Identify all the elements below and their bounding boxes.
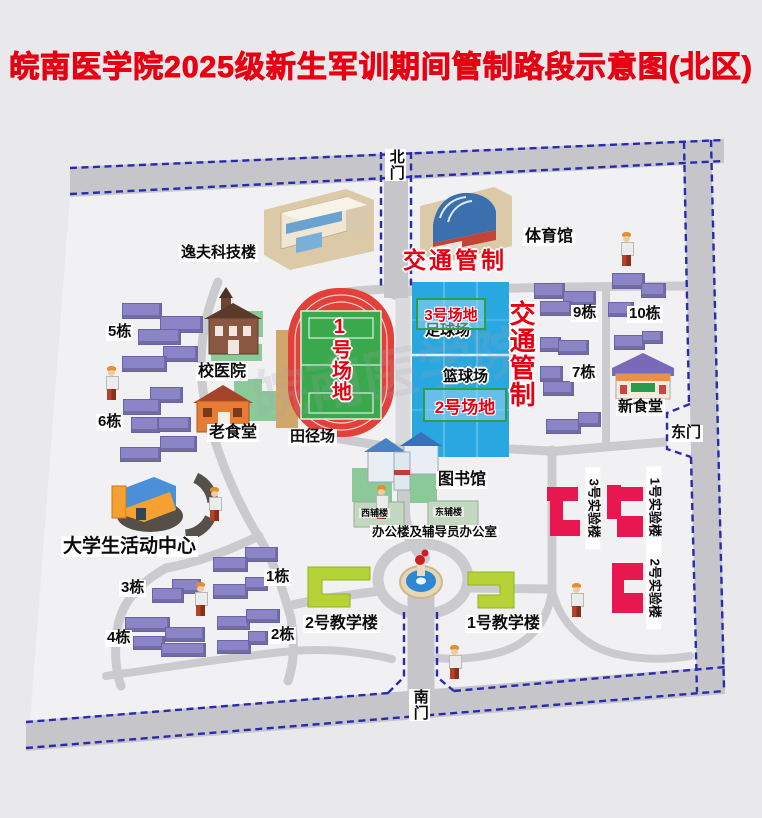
dorm-block: [152, 588, 184, 603]
field-3-zone: 3号场地: [416, 298, 486, 330]
student-figure: [618, 232, 635, 266]
field-2-zone: 2号场地: [423, 388, 507, 422]
dorm-block: [160, 436, 197, 452]
person-torso: [621, 242, 634, 256]
activity-center-label: 大学生活动中心: [61, 536, 198, 557]
dorm-block: [248, 631, 268, 645]
person-legs: [622, 255, 631, 266]
dorm-label: 7栋: [570, 365, 597, 382]
old-canteen-label: 老食堂: [207, 424, 259, 442]
dorm-block: [578, 412, 601, 427]
dorm-block: [161, 643, 206, 657]
east-gate-label: 东门: [669, 425, 703, 442]
person-torso: [571, 593, 584, 607]
field-1-label: 1号场地: [326, 316, 352, 402]
dorm-block: [165, 627, 205, 642]
person-torso: [106, 376, 119, 390]
person-legs: [196, 605, 205, 616]
dorm-block: [534, 283, 565, 299]
student-figure: [192, 582, 209, 616]
dorm-block: [120, 447, 161, 462]
lab-building-3-label: 3号实验楼: [586, 467, 601, 549]
library-label: 图书馆: [436, 471, 488, 489]
dorm-block: [558, 340, 589, 355]
new-canteen-label: 新食堂: [616, 399, 665, 416]
teaching-building-1-label: 1号教学楼: [465, 615, 542, 633]
student-figure: [446, 645, 463, 679]
traffic-control-banner: 交通管制: [401, 248, 509, 274]
dorm-block: [217, 640, 251, 654]
dorm-block: [131, 417, 160, 433]
south-gate-label: 南门: [409, 689, 430, 721]
dorm-block: [540, 366, 563, 382]
east-annex-label: 东辅楼: [433, 507, 464, 517]
person-legs: [572, 606, 581, 617]
person-legs: [450, 668, 459, 679]
traffic-control-banner-vertical: 交通管制: [504, 300, 537, 408]
dorm-block: [614, 335, 645, 350]
north-gate-label: 北门: [385, 149, 406, 181]
lab-building-1-label: 1号实验楼: [647, 466, 662, 548]
gym-label: 体育馆: [523, 228, 575, 246]
dorm-block: [546, 419, 581, 434]
dorm-block: [245, 547, 278, 562]
dorm-block: [641, 283, 666, 298]
dorm-block: [122, 303, 162, 319]
teaching-building-2-label: 2号教学楼: [303, 615, 380, 633]
dorm-label: 6栋: [96, 414, 123, 431]
dorm-block: [122, 356, 167, 372]
student-figure: [568, 583, 585, 617]
student-figure: [206, 487, 223, 521]
person-torso: [209, 497, 222, 511]
dorm-block: [213, 584, 248, 599]
person-legs: [210, 510, 219, 521]
dorm-label: 9栋: [571, 305, 598, 322]
dorm-label: 1栋: [264, 569, 291, 586]
dorm-block: [163, 346, 198, 362]
dorm-label: 4栋: [105, 630, 132, 647]
yifu-label: 逸夫科技楼: [179, 245, 258, 262]
dorm-block: [213, 557, 248, 572]
west-annex-label: 西辅楼: [359, 508, 390, 518]
basketball-court-label: 篮球场: [441, 369, 490, 386]
person-torso: [449, 655, 462, 669]
dorm-block: [543, 381, 574, 396]
lab-building-2-label: 2号实验楼: [647, 547, 662, 629]
dorm-block: [246, 609, 280, 623]
dorm-block: [138, 329, 181, 345]
dorm-block: [123, 399, 161, 415]
dorm-label: 3栋: [119, 580, 146, 597]
dorm-label: 2栋: [269, 627, 296, 644]
office-label: 办公楼及辅导员办公室: [370, 525, 499, 539]
person-legs: [107, 389, 116, 400]
dorm-block: [158, 417, 191, 432]
person-torso: [195, 592, 208, 606]
dorm-block: [540, 301, 572, 316]
dorm-label: 10栋: [627, 306, 663, 323]
campus-map-page: 皖南医学院2025级新生军训期间管制路段示意图(北区) 皖南医学院: [0, 0, 762, 818]
hospital-label: 校医院: [196, 363, 248, 381]
person-torso: [376, 495, 389, 509]
track-label: 田径场: [288, 429, 337, 446]
dorm-block: [642, 331, 663, 344]
dorm-label: 5栋: [106, 324, 133, 341]
student-figure: [103, 366, 120, 400]
